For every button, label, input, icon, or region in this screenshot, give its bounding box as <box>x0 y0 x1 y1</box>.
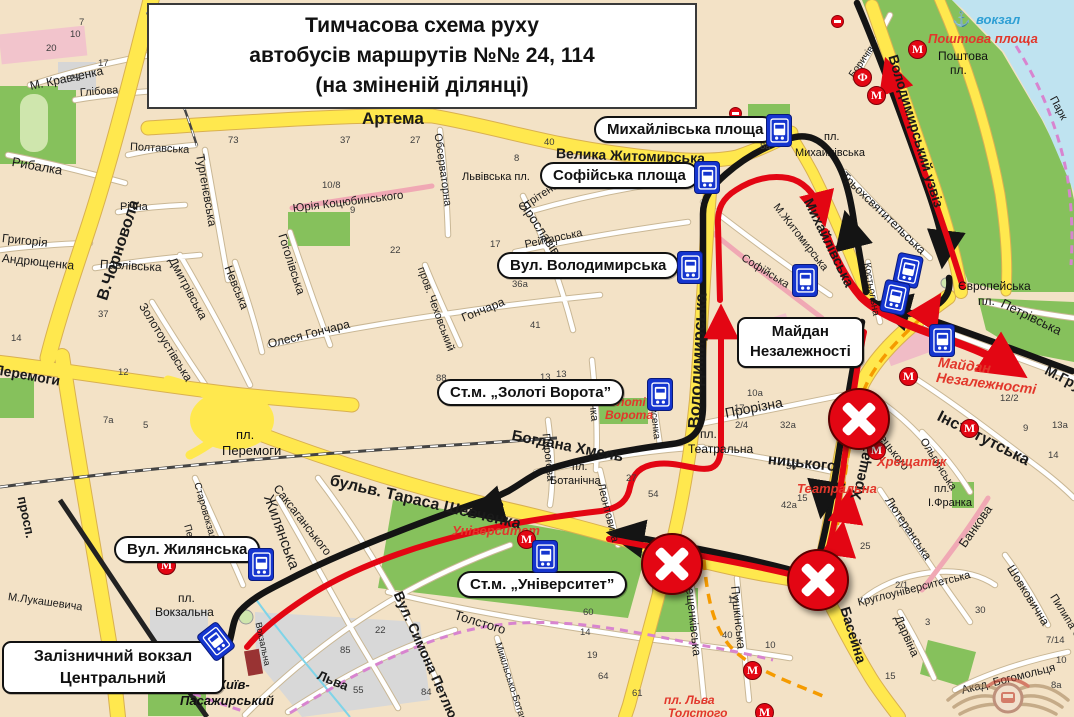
house-number: 20 <box>46 44 57 54</box>
anchor-icon: ⚓ <box>952 10 971 28</box>
callout-mykhailivska-ploshcha: Михайлівська площа <box>594 116 776 143</box>
house-number: 10 <box>70 30 81 40</box>
bus-icon <box>536 544 555 569</box>
house-number: 10 <box>765 641 776 651</box>
house-number: 12/2 <box>1000 394 1019 404</box>
house-number: 8 <box>514 154 519 164</box>
house-number: 27 <box>410 136 421 146</box>
bus-stop-icon-maidan <box>929 324 955 357</box>
station-label-tolstoho-1: пл. Льва <box>664 694 715 706</box>
callout-vul-volodymyrska: Вул. Володимирська <box>497 252 679 279</box>
title-line3: (на зміненій ділянці) <box>315 74 528 98</box>
house-number: 73 <box>228 136 239 146</box>
callout-stm-universytet: Ст.м. „Університет” <box>457 571 627 598</box>
kyivpastrans-logo <box>942 664 1074 717</box>
bus-icon <box>883 283 907 311</box>
house-number: 10а <box>747 389 763 399</box>
house-number: 17 <box>490 240 501 250</box>
place-vokzalna-pl: пл. <box>178 592 195 604</box>
street-label-artema: Артема <box>362 110 424 127</box>
bus-icon <box>698 165 717 190</box>
place-poshtova-pl2: пл. <box>950 64 967 76</box>
house-number: 22 <box>375 626 386 636</box>
callout-vokzal-line1: Залізничний вокзал <box>15 646 211 668</box>
station-label-zoloti-2: Ворота <box>605 409 653 421</box>
place-botanichna-pl2: Ботанічна <box>550 476 601 487</box>
station-label-tolstoho-2: Толстого <box>668 707 727 717</box>
callout-maidan-line1: Майдан <box>750 322 851 342</box>
place-mykhailivska-pl: пл. <box>824 132 839 143</box>
bus-stop-icon-sofiiska-street <box>792 264 818 297</box>
title-line2: автобусів маршрутів №№ 24, 114 <box>249 44 594 68</box>
house-number: 36а <box>512 280 528 290</box>
place-kyiv-pas2: Пасажирський <box>180 694 274 707</box>
house-number: 7/14 <box>1046 636 1065 646</box>
house-number: 40 <box>722 631 733 641</box>
bus-icon <box>651 382 670 407</box>
place-poshtova-pl: Поштова <box>938 50 988 62</box>
house-number: 60 <box>583 608 594 618</box>
house-number: 9 <box>350 206 355 216</box>
house-number: 12 <box>118 368 129 378</box>
metro-icon: М <box>743 661 762 680</box>
house-number: 85 <box>340 646 351 656</box>
station-label-teatralna: Театральна <box>797 482 877 495</box>
house-number: 2/4 <box>735 421 748 431</box>
street-label-pavlivska: Павлівська <box>100 258 162 273</box>
house-number: 55 <box>353 686 364 696</box>
station-label-poshtova: Поштова площа <box>928 32 1038 45</box>
house-number: 9 <box>1023 424 1028 434</box>
house-number: 30 <box>975 606 986 616</box>
house-number: 32а <box>780 421 796 431</box>
road-closed-marker <box>641 533 703 595</box>
house-number: 19 <box>587 651 598 661</box>
house-number: 22 <box>390 246 401 256</box>
house-number: 7 <box>79 18 84 28</box>
house-number: 15 <box>797 494 808 504</box>
place-mykhailivska-pl2: Михайлівська <box>795 148 865 159</box>
place-teatralna-pl: пл. <box>700 428 717 440</box>
house-number: 14 <box>580 628 591 638</box>
bus-stop-icon-mykhailivska <box>766 114 792 147</box>
place-lvivska-pl: Львівська пл. <box>462 172 530 183</box>
house-number: 3 <box>925 618 930 628</box>
callout-vokzal-line2: Центральний <box>15 668 211 690</box>
street-label-richna: Річна <box>120 202 148 213</box>
house-number: 84 <box>421 688 432 698</box>
metro-icon: М <box>908 40 927 59</box>
station-label-khreshchatyk: Хрещатик <box>877 455 946 468</box>
place-franka-pl2: І.Франка <box>928 498 972 509</box>
house-number: 13а <box>1052 421 1068 431</box>
callout-maidan-line2: Незалежності <box>750 342 851 362</box>
house-number: 10/8 <box>322 181 341 191</box>
house-number: 25 <box>860 542 871 552</box>
house-number: 42а <box>781 501 797 511</box>
title-line1: Тимчасова схема руху <box>305 14 539 38</box>
house-number: 40 <box>544 138 555 148</box>
house-number: 2/1 <box>895 581 908 591</box>
house-number: 17 <box>734 404 745 414</box>
bus-stop-icon-universytet <box>532 540 558 573</box>
callout-stm-zoloti-vorota: Ст.м. „Золоті Ворота” <box>437 379 624 406</box>
callout-sofiiska-ploshcha: Софійська площа <box>540 162 699 189</box>
house-number: 5 <box>143 421 148 431</box>
bus-icon <box>933 328 952 353</box>
bus-icon <box>770 118 789 143</box>
house-number: 27 <box>626 474 637 484</box>
house-number: 17 <box>98 59 109 69</box>
place-botanichna-pl: пл. <box>572 462 587 473</box>
house-number: 36 <box>786 462 797 472</box>
house-number: 7а <box>103 416 114 426</box>
metro-icon: М <box>867 86 886 105</box>
place-franka-pl: пл. <box>934 484 949 495</box>
house-number: 14 <box>1048 451 1059 461</box>
house-number: 23 <box>70 74 81 84</box>
road-closed-marker <box>787 549 849 611</box>
place-peremohy-pl: пл. <box>236 428 254 441</box>
bus-icon <box>896 256 920 284</box>
map-title: Тимчасова схема руху автобусів маршрутів… <box>147 3 697 109</box>
metro-icon: М <box>755 703 774 717</box>
road-closed-marker <box>828 388 890 450</box>
house-number: 37 <box>98 310 109 320</box>
house-number: 64 <box>598 672 609 682</box>
house-number: 61 <box>632 689 643 699</box>
river-port-label: вокзал <box>976 13 1020 26</box>
house-number: 41 <box>530 321 541 331</box>
bus-stop-icon-zhylianska <box>248 548 274 581</box>
bus-icon <box>796 268 815 293</box>
bus-stop-icon-volodymyrska <box>677 251 703 284</box>
house-number: 15 <box>885 672 896 682</box>
bus-stop-icon-sofiiska <box>694 161 720 194</box>
metro-icon: М <box>960 419 979 438</box>
callout-vul-zhylianska: Вул. Жилянська <box>114 536 260 563</box>
winged-wheel-icon <box>942 664 1074 716</box>
place-yevropeiska-pl: Європейська <box>958 280 1031 292</box>
callout-zaliznychnyi-vokzal: Залізничний вокзал Центральний <box>2 641 224 694</box>
place-vokzalna-pl2: Вокзальна <box>155 606 214 618</box>
house-number: 13 <box>728 596 739 606</box>
road-sign-icon <box>831 15 844 28</box>
place-teatralna-pl2: Театральна <box>688 443 753 455</box>
funicular-icon: Ф <box>853 68 872 87</box>
bus-icon <box>681 255 700 280</box>
map-canvas: Артема В.Чорновола Володимирська Хрещати… <box>0 0 1074 717</box>
callout-maidan-nezalezhnosti: Майдан Незалежності <box>737 317 864 368</box>
metro-icon: М <box>899 367 918 386</box>
house-number: 14 <box>11 334 22 344</box>
bus-stop-icon-zoloti-vorota <box>647 378 673 411</box>
house-number: 54 <box>648 490 659 500</box>
place-peremohy-pl2: Перемоги <box>222 444 281 457</box>
bus-icon <box>252 552 271 577</box>
house-number: 37 <box>340 136 351 146</box>
place-yevropeiska-pl2: пл. <box>978 295 995 307</box>
